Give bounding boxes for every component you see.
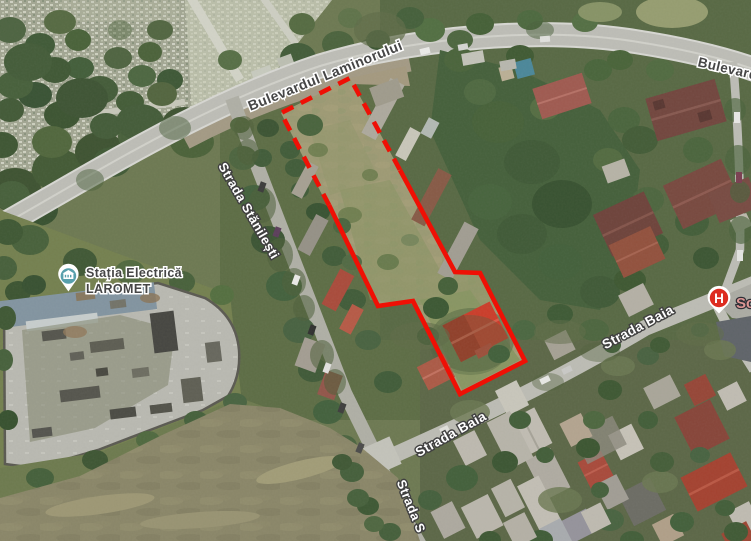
svg-text:Stația Electrică: Stația Electrică [86, 266, 183, 280]
svg-text:H: H [714, 291, 724, 306]
svg-text:LAROMET: LAROMET [86, 282, 151, 296]
svg-text:Sc: Sc [736, 295, 751, 312]
